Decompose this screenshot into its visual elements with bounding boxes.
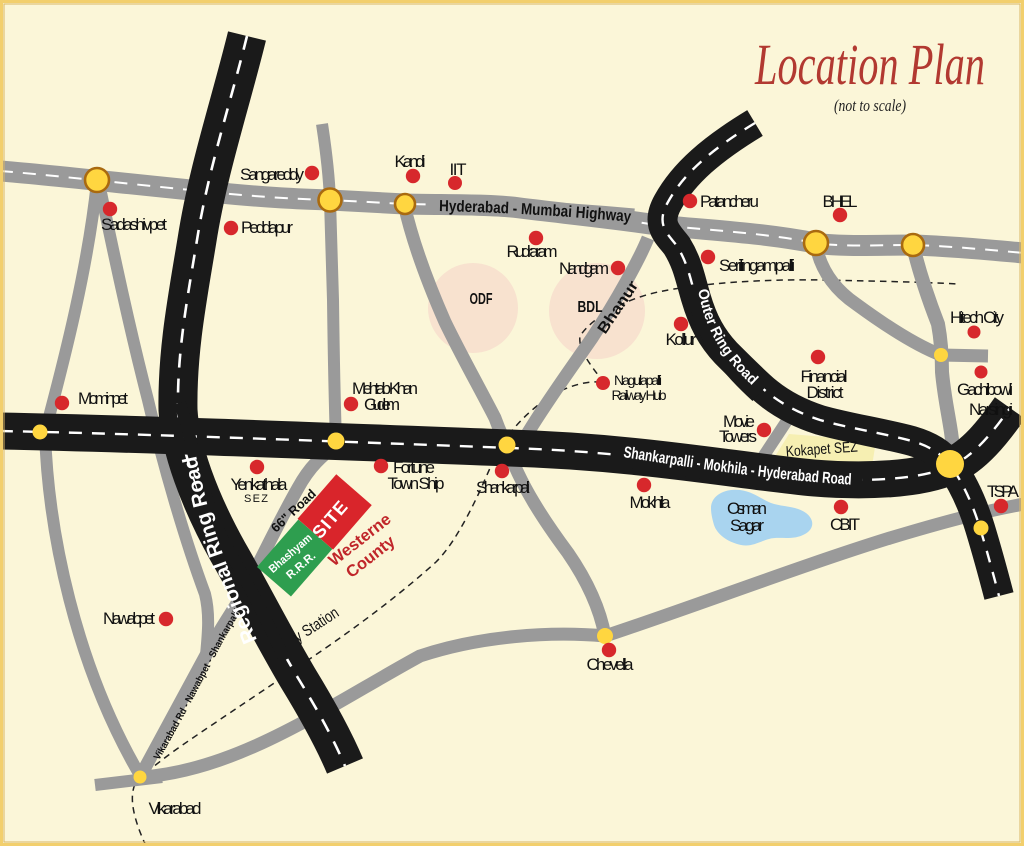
svg-text:Serilingampalli: Serilingampalli [719,256,795,275]
svg-text:Patancheru: Patancheru [700,192,759,211]
svg-text:Mokhila: Mokhila [630,493,672,512]
svg-text:Vikarabad: Vikarabad [149,799,202,818]
svg-text:Peddapur: Peddapur [241,218,293,237]
svg-text:TSPA: TSPA [987,482,1020,501]
svg-text:Narsingi: Narsingi [969,400,1013,419]
svg-text:Kollur: Kollur [666,330,697,349]
svg-text:Shankarpalli: Shankarpalli [476,478,530,497]
svg-text:CBIT: CBIT [830,515,860,534]
svg-text:IIT: IIT [450,160,467,179]
svg-text:BHEL: BHEL [823,192,858,211]
svg-text:Nandigam: Nandigam [559,259,609,278]
svg-text:BDL: BDL [578,299,603,316]
svg-text:Yenkathala: Yenkathala [231,475,289,494]
svg-text:Mominpet: Mominpet [78,389,128,408]
svg-text:Sadashivpet: Sadashivpet [101,215,167,234]
svg-text:Railway Hub: Railway Hub [612,387,667,403]
svg-text:Kandi: Kandi [395,152,426,171]
svg-text:Hitech City: Hitech City [950,308,1005,327]
svg-text:Gudem: Gudem [364,395,400,414]
svg-text:Location Plan: Location Plan [754,32,985,97]
svg-text:Sagar: Sagar [730,516,764,535]
svg-text:Towers: Towers [719,427,757,446]
svg-text:Gachibowli: Gachibowli [957,380,1013,399]
svg-text:SEZ: SEZ [244,493,268,505]
svg-text:Chevella: Chevella [587,655,635,674]
svg-text:ODF: ODF [470,291,493,308]
svg-text:District: District [807,383,844,402]
svg-text:(not to scale): (not to scale) [834,96,906,115]
svg-text:Sangareddy: Sangareddy [240,165,305,184]
svg-text:Town Ship: Town Ship [388,474,445,493]
svg-text:Rudraram: Rudraram [507,242,558,261]
svg-text:Nagulapalli: Nagulapalli [614,372,662,388]
svg-text:Nawabpet: Nawabpet [103,609,155,628]
